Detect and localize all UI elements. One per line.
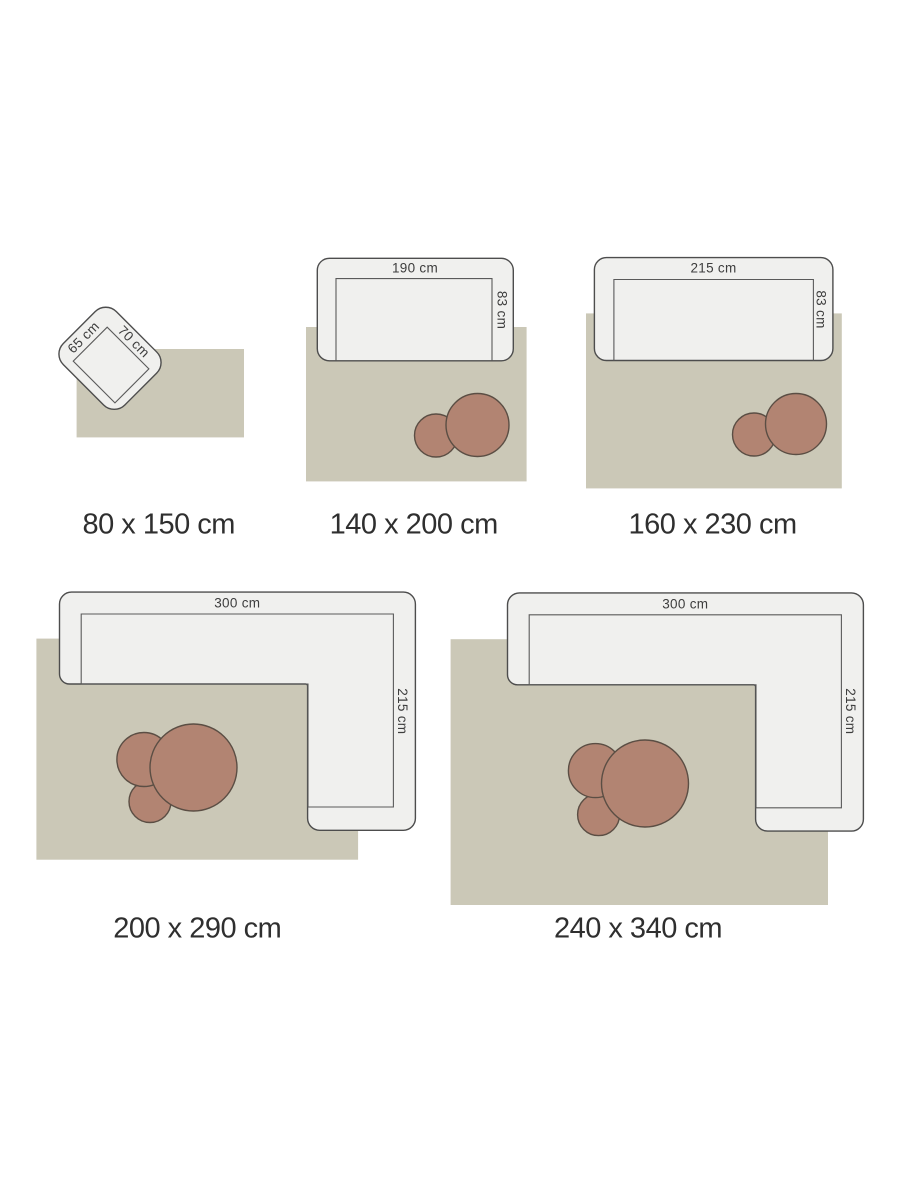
svg-text:160 x 230 cm: 160 x 230 cm: [629, 509, 797, 541]
svg-text:215 cm: 215 cm: [395, 688, 410, 734]
svg-text:83 cm: 83 cm: [495, 291, 510, 329]
svg-text:200 x 290 cm: 200 x 290 cm: [113, 913, 281, 945]
svg-text:83 cm: 83 cm: [814, 290, 829, 328]
svg-text:215 cm: 215 cm: [690, 261, 736, 276]
svg-text:215 cm: 215 cm: [843, 688, 858, 734]
svg-text:190 cm: 190 cm: [392, 261, 438, 276]
svg-text:240 x 340 cm: 240 x 340 cm: [554, 913, 722, 945]
svg-text:300 cm: 300 cm: [214, 596, 260, 611]
svg-text:140 x 200 cm: 140 x 200 cm: [330, 509, 498, 541]
svg-text:80 x 150 cm: 80 x 150 cm: [82, 509, 234, 541]
svg-text:300 cm: 300 cm: [662, 596, 708, 611]
